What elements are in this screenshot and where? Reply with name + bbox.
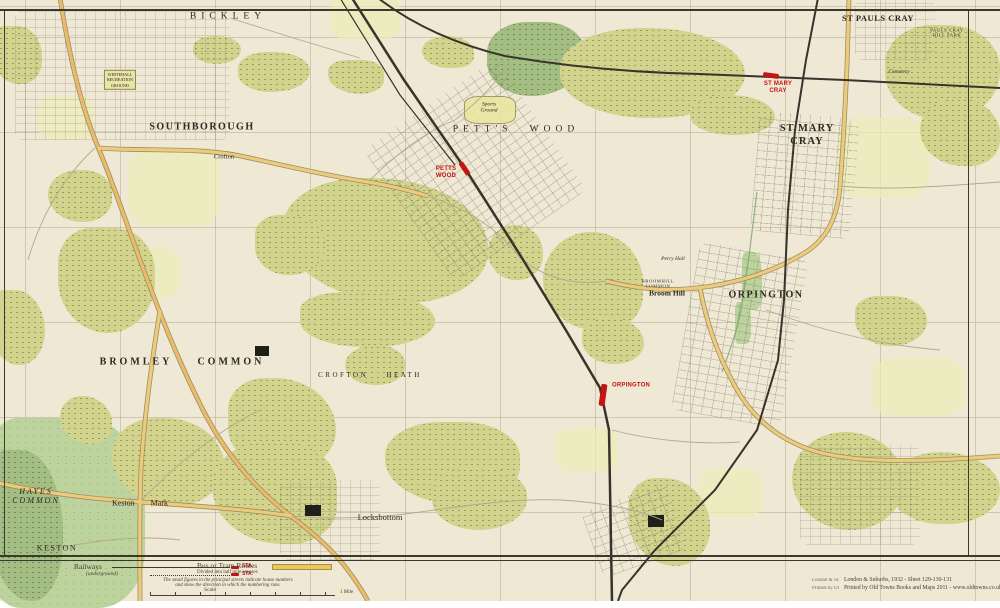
place-label-crofton-heath: CROFTON HEATH bbox=[318, 371, 422, 379]
station-label-orpington-station: ORPINGTON bbox=[612, 383, 650, 390]
legend-note-line2: and show the direction in which the numb… bbox=[175, 583, 281, 588]
attribution-ghost2: Printed by Ol bbox=[812, 586, 839, 591]
place-label-crofton: Crofton bbox=[214, 153, 234, 160]
legend-scale-end: 1 Mile bbox=[340, 590, 353, 595]
station-marker-st-mary-cray-station bbox=[763, 71, 780, 78]
legend-scale-bar bbox=[150, 592, 335, 596]
place-label-broomhill-common: BROOMHILL COMMON bbox=[642, 279, 675, 290]
legend-railways-sub: (underground) bbox=[86, 571, 118, 577]
place-label-cemetery: Cemetery bbox=[888, 69, 909, 75]
place-label-broom-hill: Broom Hill bbox=[649, 290, 685, 299]
place-label-locksbottom: Locksbottom bbox=[358, 513, 403, 523]
place-label-southborough: SOUTHBOROUGH bbox=[149, 121, 254, 133]
legend-bus-route-bar bbox=[272, 564, 332, 570]
place-label-perry-hall: Perry Hall bbox=[661, 256, 685, 262]
legend-strip: Railways STA. (underground) STA. The sma… bbox=[0, 556, 1000, 601]
place-label-st-mary-cray: ST MARY CRAY bbox=[780, 122, 835, 148]
place-label-bromley-common: BROMLEY COMMON bbox=[100, 356, 265, 368]
place-label-petts-wood: PETT'S WOOD bbox=[453, 125, 579, 136]
place-label-hayes-common: HAYES COMMON bbox=[12, 487, 60, 505]
place-label-keston-mark: Keston Mark bbox=[112, 498, 168, 507]
attribution-line2: Printed by OlPrinted by Old Towns Books … bbox=[812, 576, 1000, 594]
station-label-st-mary-cray-station: ST MARY CRAY bbox=[764, 81, 792, 95]
legend-bus-sub: Divided into half mile squares bbox=[197, 570, 258, 575]
place-label-st-pauls-cray: ST PAULS CRAY bbox=[842, 14, 914, 24]
legend-railways-dotted-line bbox=[150, 575, 230, 576]
attribution-main2: Printed by Old Towns Books and Maps 2011… bbox=[844, 585, 1000, 591]
station-marker-petts-wood-station bbox=[458, 160, 471, 175]
place-label-bickley: BICKLEY bbox=[190, 12, 266, 23]
station-label-petts-wood-station: PETTS WOOD bbox=[436, 166, 456, 180]
place-label-orpington: ORPINGTON bbox=[729, 289, 804, 301]
place-label-pauls-cray-hill-park: PAULS CRAY HILL PARK bbox=[930, 28, 964, 39]
stations-layer: PETTS WOODST MARY CRAYORPINGTON bbox=[0, 0, 1000, 601]
place-label-whitehall-rec: WHITEHALL RECREATION GROUND bbox=[104, 70, 136, 90]
map-canvas: BICKLEYSOUTHBOROUGHPETT'S WOODST PAULS C… bbox=[0, 0, 1000, 601]
station-marker-orpington-station bbox=[598, 384, 607, 407]
place-label-keston: KESTON bbox=[37, 543, 77, 552]
place-label-sports-ground: Sports Ground bbox=[481, 102, 498, 115]
